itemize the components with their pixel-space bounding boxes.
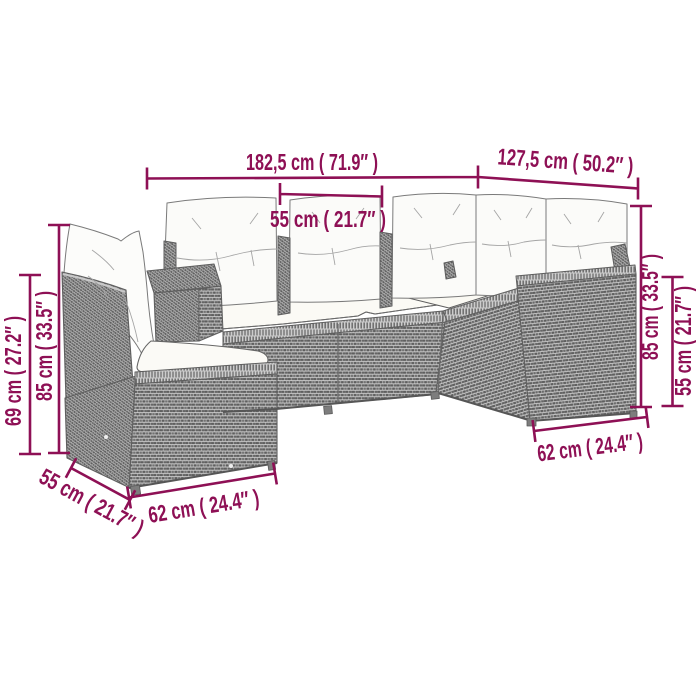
svg-text:85 cm ( 33.5″ ): 85 cm ( 33.5″ ) — [637, 254, 663, 360]
svg-text:85 cm ( 33.5″ ): 85 cm ( 33.5″ ) — [31, 291, 57, 401]
svg-text:55 cm ( 21.7″ ): 55 cm ( 21.7″ ) — [670, 286, 696, 396]
svg-text:182,5 cm ( 71.9″ ): 182,5 cm ( 71.9″ ) — [246, 149, 378, 175]
svg-text:55 cm ( 21.7″ ): 55 cm ( 21.7″ ) — [270, 206, 386, 232]
svg-text:69 cm ( 27.2″ ): 69 cm ( 27.2″ ) — [0, 316, 26, 426]
